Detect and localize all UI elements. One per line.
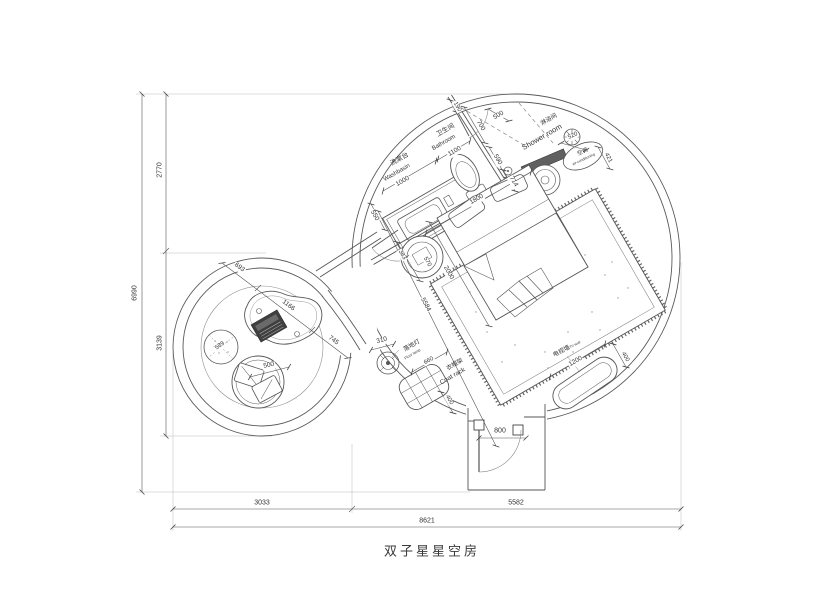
dim-entry-door: 800 (493, 428, 507, 435)
faucet-icon (444, 195, 454, 207)
dim-overall-width: 8621 (418, 518, 436, 525)
entry-door-swing (479, 430, 521, 472)
dim-width-right: 5582 (507, 500, 525, 507)
drawing-title: 双子星星空房 (383, 545, 481, 558)
floor-plan-drawing (0, 0, 837, 592)
dim-overall-height: 6990 (132, 284, 139, 302)
dim-height-bottom: 3139 (157, 334, 164, 352)
dim-width-left: 3033 (253, 500, 271, 507)
lounge-room-outer-wall (173, 258, 351, 436)
floorplan-page: 6990 2770 3139 3033 5582 8621 双子星星空房 洗漱台… (0, 0, 837, 592)
door-jamb (513, 425, 523, 435)
door-jamb (474, 420, 484, 430)
dim-height-top: 2770 (157, 161, 164, 179)
corridor-door-swing (372, 248, 400, 261)
round-chair (232, 356, 284, 408)
